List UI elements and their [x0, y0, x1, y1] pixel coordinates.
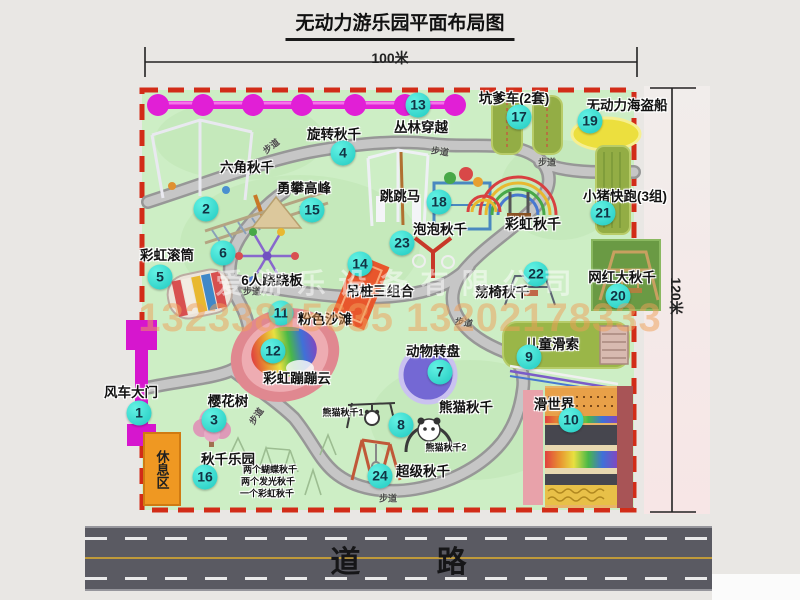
attraction-label-1: 风车大门 [104, 381, 158, 401]
attraction-marker-13: 13 [406, 93, 431, 118]
attraction-label-14: 吊桩三组合 [346, 280, 414, 300]
attraction-marker-1: 1 [127, 401, 152, 426]
attraction-marker-21: 21 [591, 201, 616, 226]
attraction-label-22: 荡椅秋千 [475, 281, 529, 301]
footpath-label-3: 步道 [538, 156, 556, 169]
attraction-marker-7: 7 [428, 360, 453, 385]
attraction-marker-18: 18 [427, 190, 452, 215]
attraction-label-12: 彩虹蹦蹦云 [263, 367, 331, 387]
attraction-label-7: 动物转盘 [406, 340, 460, 360]
rest-area: 休息区 [143, 432, 181, 506]
attraction-label-18: 跳跳马 [380, 185, 421, 205]
attraction-marker-10: 10 [559, 408, 584, 433]
attraction-label-17: 坑爹车(2套) [479, 87, 550, 107]
attraction-marker-15: 15 [300, 198, 325, 223]
attraction-label-2: 六角秋千 [220, 156, 274, 176]
attraction-marker-6: 6 [211, 241, 236, 266]
corner-box [712, 574, 800, 600]
attraction-label-11: 粉色沙滩 [298, 308, 352, 328]
attraction-marker-8: 8 [389, 413, 414, 438]
attraction-marker-2: 2 [194, 197, 219, 222]
attraction-marker-3: 3 [202, 408, 227, 433]
attraction-label-5: 彩虹滚筒 [140, 244, 194, 264]
attraction-label-4: 旋转秋千 [307, 123, 361, 143]
attraction-label-24: 超级秋千 [396, 460, 450, 480]
attraction-label-8: 熊猫秋千 [439, 396, 493, 416]
attraction-marker-4: 4 [331, 141, 356, 166]
road-label: 道 路 [296, 537, 500, 581]
attraction-marker-12: 12 [261, 339, 286, 364]
attraction-marker-22: 22 [524, 262, 549, 287]
rainbow-swing-label: 彩虹秋千 [505, 214, 561, 234]
attraction-marker-17: 17 [507, 105, 532, 130]
playground-layout-map: 无动力游乐园平面布局图 100米 120米 [0, 0, 800, 600]
swing-park-item-3: 一个彩虹秋千 [240, 487, 294, 500]
panda-swing-1-label: 熊猫秋千1 [322, 406, 363, 419]
road: 道 路 [85, 526, 712, 591]
attraction-label-13: 丛林穿越 [394, 116, 448, 136]
attraction-label-23: 泡泡秋千 [413, 218, 467, 238]
attraction-marker-19: 19 [578, 109, 603, 134]
attraction-marker-20: 20 [606, 284, 631, 309]
footpath-label-2: 步道 [430, 143, 450, 158]
panda-swing-2-label: 熊猫秋千2 [425, 441, 466, 454]
page-title: 无动力游乐园平面布局图 [285, 8, 514, 41]
attraction-marker-11: 11 [269, 301, 294, 326]
width-dimension-label: 100米 [371, 48, 408, 68]
footpath-label-7: 步道 [379, 492, 397, 505]
attraction-marker-16: 16 [193, 465, 218, 490]
footpath-label-4: 步道 [243, 285, 261, 298]
attraction-label-15: 勇攀高峰 [277, 177, 331, 197]
attraction-marker-14: 14 [348, 252, 373, 277]
attraction-marker-24: 24 [368, 464, 393, 489]
attraction-marker-23: 23 [390, 231, 415, 256]
attraction-label-20: 网红大秋千 [588, 266, 656, 286]
height-dimension-label: 120米 [666, 277, 686, 314]
attraction-marker-5: 5 [148, 265, 173, 290]
attraction-marker-9: 9 [517, 345, 542, 370]
